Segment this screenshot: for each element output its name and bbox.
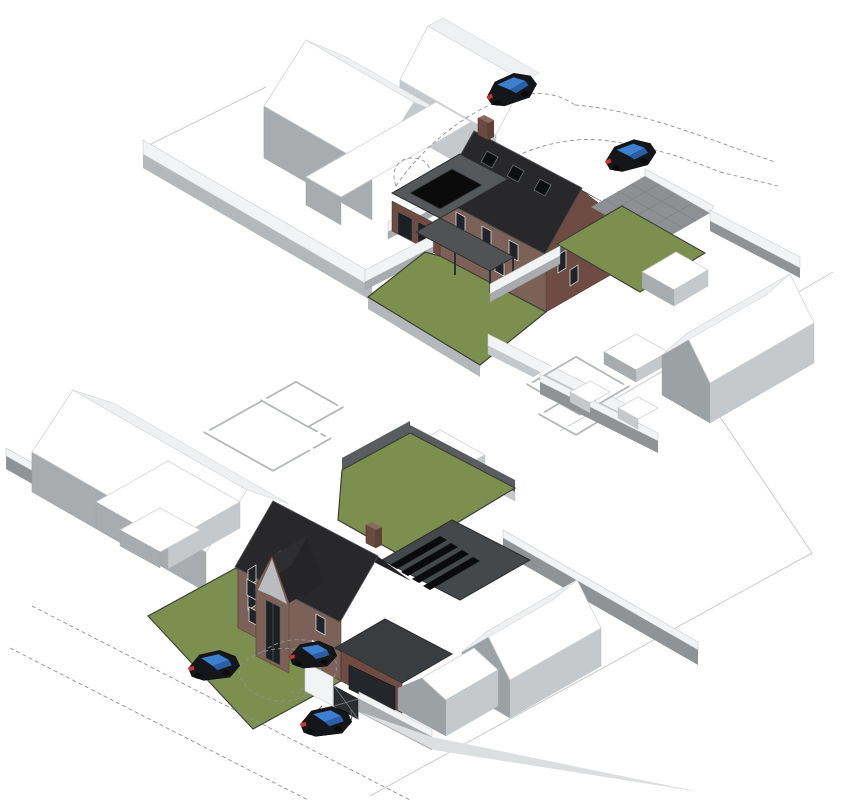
axonometric-views-svg bbox=[0, 0, 850, 804]
chimney bbox=[366, 522, 382, 548]
boundary-wall bbox=[710, 210, 800, 268]
neighbour-house-east bbox=[642, 252, 814, 423]
site-visualization-canvas bbox=[0, 0, 850, 804]
boundary-wall-shade bbox=[710, 221, 800, 278]
car-top-2 bbox=[604, 138, 657, 172]
site-edge-line bbox=[716, 411, 812, 553]
site-edge-line bbox=[143, 87, 266, 148]
view-bottom-street-front bbox=[6, 374, 812, 800]
neighbour-walls-northeast bbox=[540, 374, 658, 453]
courtyard-walls bbox=[205, 379, 344, 470]
view-top-rear-garden bbox=[143, 18, 833, 434]
